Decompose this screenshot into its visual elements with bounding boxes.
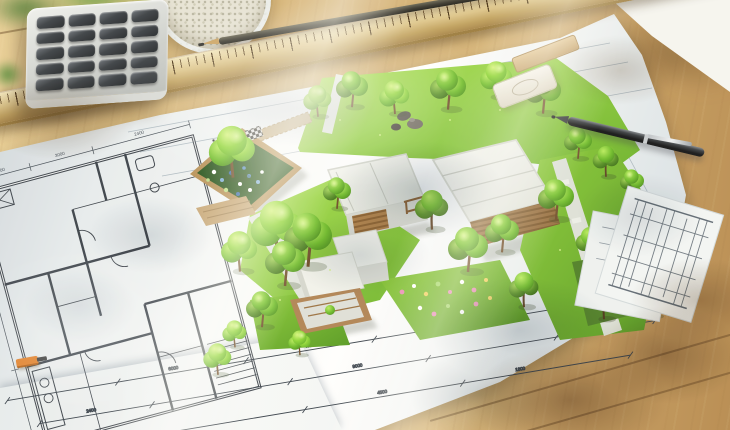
bottom-flower-bed	[380, 260, 530, 340]
wood-deck	[196, 196, 256, 226]
desk-photo: 6000 3000 2400 6000 4500 2400 9000 4500 …	[0, 0, 730, 430]
dimension-label: 3000	[54, 151, 65, 159]
pen-clip	[646, 134, 692, 146]
knife-handle	[16, 356, 39, 369]
detail-knife	[14, 348, 58, 372]
dimension-label: 1800	[515, 366, 526, 373]
knife-blade	[37, 356, 48, 362]
drawing-and-model-scene: 6000 3000 2400 6000 4500 2400 9000 4500 …	[0, 0, 730, 430]
dimension-label: 6000	[168, 365, 179, 372]
dimension-label: 4500	[377, 389, 388, 396]
fineliner-pen	[558, 102, 718, 148]
dimension-label: 2400	[86, 407, 97, 414]
dimension-label: 9000	[352, 362, 363, 369]
pen-band	[643, 134, 649, 144]
dimension-label: 6000	[0, 167, 6, 175]
